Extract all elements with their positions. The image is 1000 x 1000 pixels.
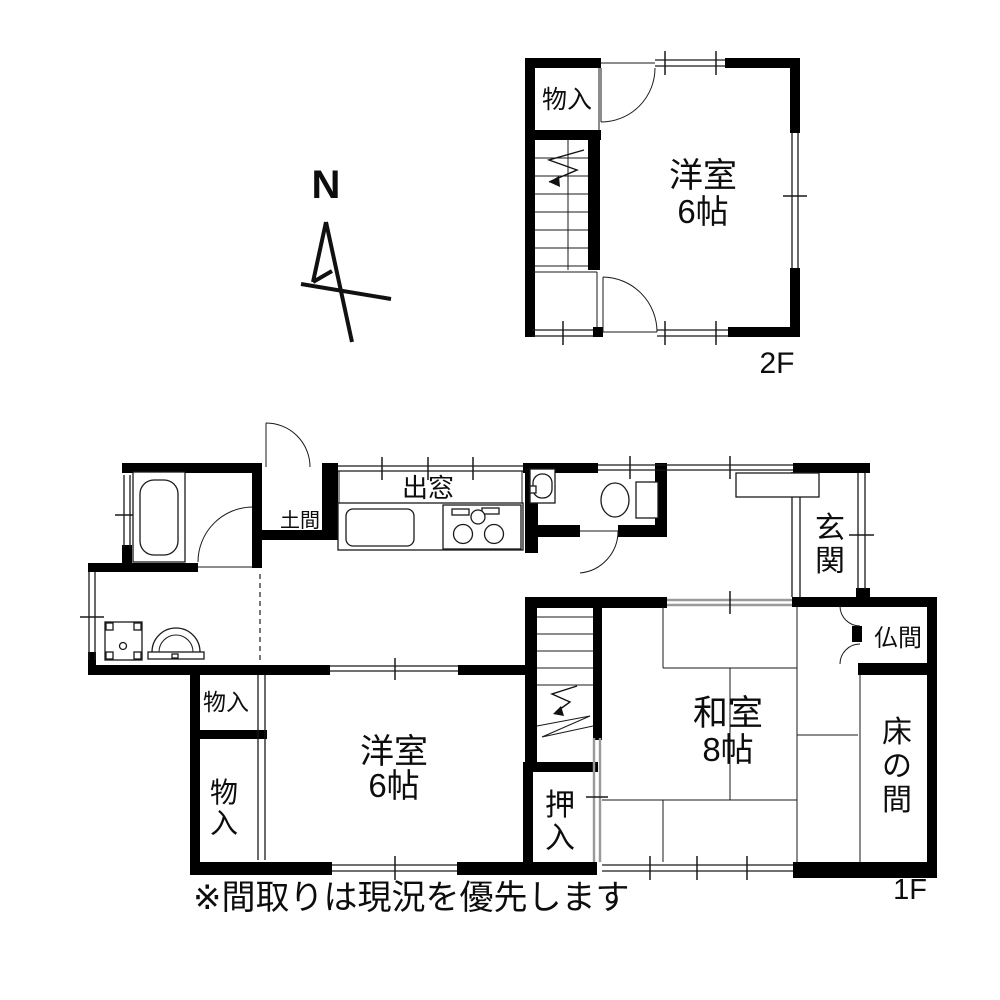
north-arrow: N (301, 163, 391, 342)
drain (120, 643, 127, 650)
shoe-cabinet (736, 473, 819, 497)
label-floor-2f: 2F (759, 347, 794, 380)
toilet-tank (636, 482, 658, 518)
stair-direction-arrow (552, 686, 577, 712)
stairs-1f (537, 617, 593, 737)
butsuma-door-arc (840, 644, 860, 664)
toilet-fixtures (530, 469, 658, 518)
label-2f-room-size: 6帖 (677, 193, 728, 230)
door-arc (603, 277, 657, 332)
compass-needle (326, 222, 352, 342)
doors-2f (601, 63, 657, 332)
door-arc (601, 68, 655, 122)
kitchen-sink (346, 509, 414, 546)
compass-crossbar (301, 284, 391, 299)
label-oshiire: 押入 (545, 789, 575, 855)
label-2f-storage: 物入 (542, 86, 592, 114)
bathtub (140, 480, 178, 555)
label-youshitsu-name: 洋室 (360, 733, 428, 771)
floorplan-image: 物入 洋室 6帖 2F N (0, 0, 1000, 1000)
label-tokonoma: 床の間 (882, 716, 912, 817)
kitchen-fixtures (338, 503, 523, 550)
floor-2f-plan: 物入 洋室 6帖 2F (525, 51, 807, 380)
back-door-arc (266, 423, 310, 467)
bath-fixtures (133, 472, 185, 562)
north-label: N (312, 163, 341, 207)
label-butsuma: 仏間 (874, 625, 922, 652)
burner (454, 525, 473, 544)
floor-1f-plan: 出窓 土間 玄関 仏間 床の間 和室 8帖 押入 物入 物入 洋室 6帖 1F (80, 423, 937, 906)
disclaimer-note: ※間取りは現況を優先します (193, 879, 630, 917)
stair-direction-arrow (549, 150, 584, 182)
label-closet-lower: 物入 (210, 777, 238, 839)
stair-arrowhead (549, 176, 560, 187)
label-youshitsu-size: 6帖 (368, 767, 419, 804)
burner (471, 510, 485, 524)
label-doma: 土間 (280, 509, 320, 532)
toilet-door-arc (580, 531, 618, 573)
bath-door-arc (198, 507, 252, 562)
laundry-fixtures (105, 622, 204, 660)
burner (485, 525, 504, 544)
label-closet-upper: 物入 (203, 689, 249, 715)
label-washitsu-name: 和室 (693, 694, 763, 733)
floorplan-svg: 物入 洋室 6帖 2F N (0, 0, 1000, 1000)
label-entrance: 玄関 (815, 512, 845, 578)
toilet-bowl (601, 483, 629, 517)
label-floor-1f: 1F (893, 874, 927, 906)
butsuma-door-arc (840, 606, 860, 626)
stair-break-line (537, 716, 593, 737)
label-2f-room-name: 洋室 (669, 157, 737, 195)
label-bay-window: 出窓 (402, 473, 454, 503)
label-washitsu-size: 8帖 (702, 731, 753, 768)
